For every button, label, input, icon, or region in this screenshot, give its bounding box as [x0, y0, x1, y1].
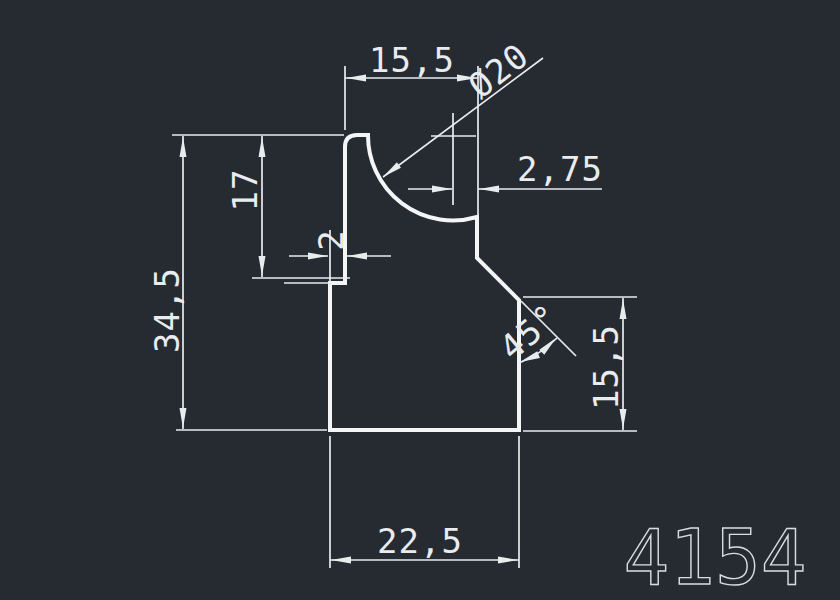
- arrowhead: [432, 186, 452, 193]
- arrowhead: [346, 75, 366, 82]
- dim-chamfer-angle: 45°: [492, 296, 576, 368]
- arrowhead: [259, 256, 266, 276]
- dim-diameter-label: Ø20: [461, 35, 536, 106]
- part-number: 4154: [623, 513, 806, 600]
- arrowhead: [180, 408, 187, 428]
- dim-center-offset: 2,75: [408, 113, 603, 205]
- cad-viewport: 15,5 Ø20 2,75 17 2: [0, 0, 840, 600]
- profile-outline: [330, 135, 519, 430]
- arrowhead: [308, 253, 328, 260]
- arrowhead: [259, 137, 266, 157]
- arrowhead: [180, 137, 187, 157]
- dim-top-width-label: 15,5: [369, 40, 455, 80]
- dim-bottom-width: 22,5: [330, 436, 519, 568]
- dim-upper-left-height-label: 17: [225, 169, 265, 212]
- dim-chamfer-angle-label: 45°: [492, 296, 567, 368]
- arrowhead: [479, 186, 499, 193]
- arrowhead: [347, 253, 367, 260]
- dim-bottom-width-label: 22,5: [377, 521, 463, 561]
- arrowhead: [331, 557, 351, 564]
- dim-total-height-label: 34,5: [147, 267, 187, 353]
- dim-step-width: 2: [284, 229, 391, 285]
- arrowhead: [620, 299, 627, 319]
- dim-center-offset-label: 2,75: [517, 149, 603, 189]
- dim-right-height-label: 15,5: [586, 324, 626, 410]
- dim-step-width-label: 2: [311, 229, 351, 250]
- arrowhead: [498, 557, 518, 564]
- arrowhead: [620, 409, 627, 429]
- cad-drawing-canvas[interactable]: 15,5 Ø20 2,75 17 2: [0, 0, 840, 600]
- arrowhead: [383, 162, 401, 177]
